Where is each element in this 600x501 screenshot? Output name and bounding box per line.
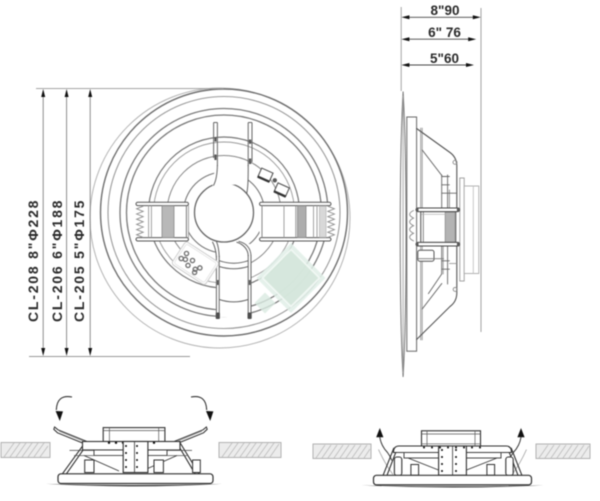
svg-text:8"90: 8"90 bbox=[431, 3, 460, 18]
svg-text:CL-206 6"Φ188: CL-206 6"Φ188 bbox=[49, 199, 65, 322]
svg-text:CL-208 8"Φ228: CL-208 8"Φ228 bbox=[25, 199, 41, 322]
svg-text:6" 76: 6" 76 bbox=[428, 25, 461, 40]
svg-text:CL-205 5"Φ175: CL-205 5"Φ175 bbox=[71, 199, 87, 322]
svg-text:5"60: 5"60 bbox=[430, 51, 459, 66]
